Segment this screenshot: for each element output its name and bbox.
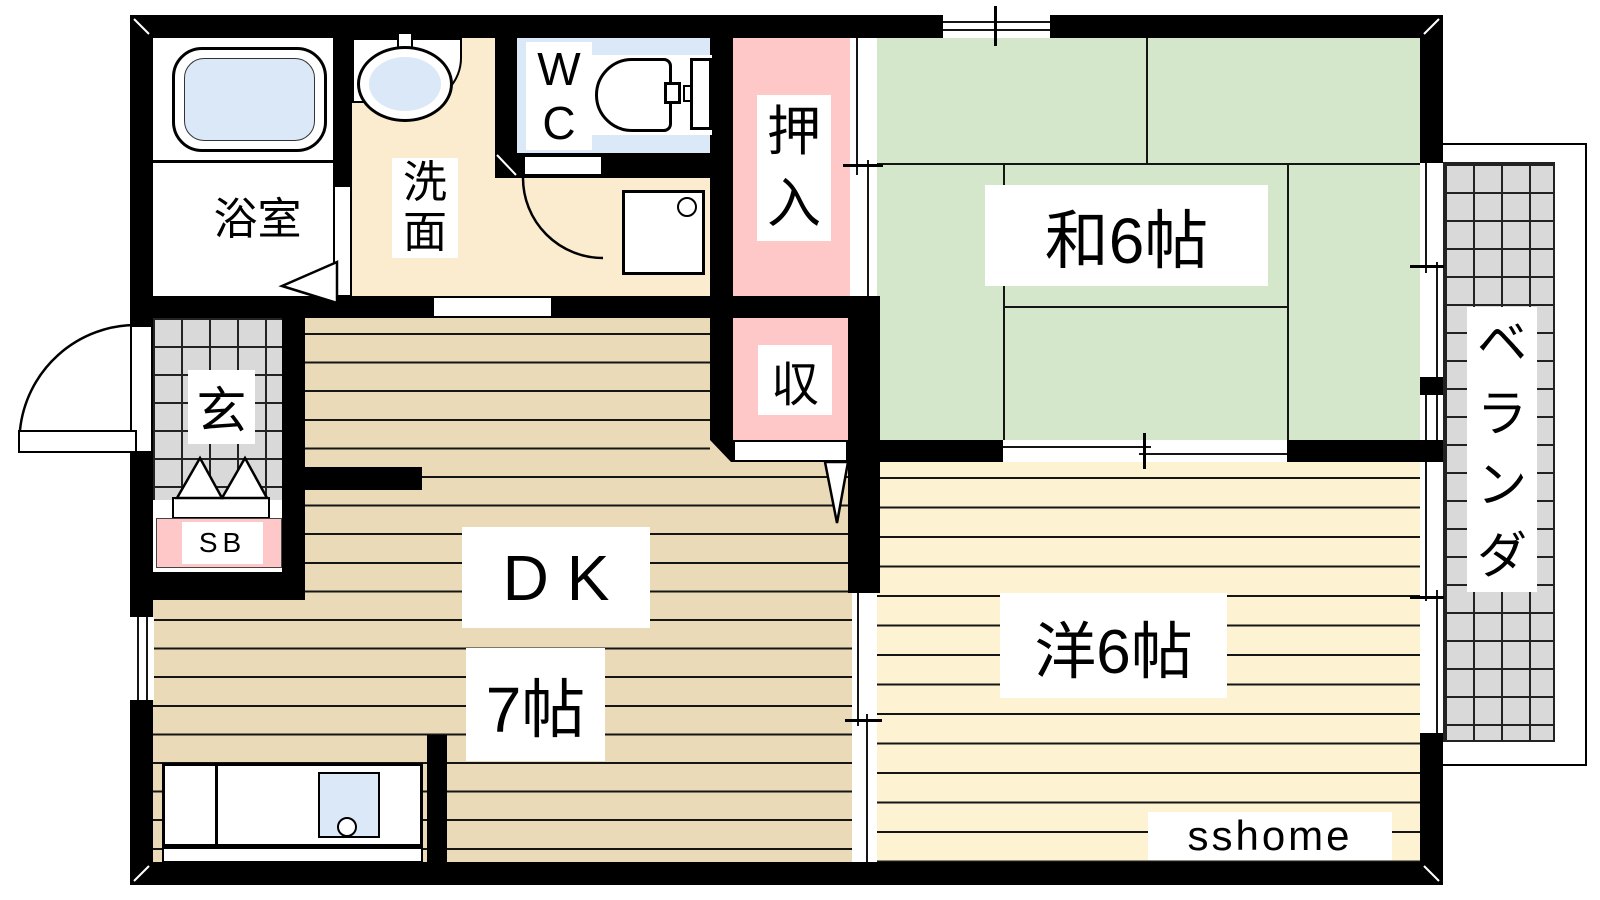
toilet-tank — [690, 58, 712, 130]
bathtub-inner — [184, 58, 315, 141]
window-pane-line — [1436, 590, 1438, 733]
sliding-door-line — [867, 160, 869, 296]
sliding-door-line — [1139, 453, 1287, 455]
sliding-door-tick — [845, 719, 882, 722]
washer-pan-drain — [677, 197, 697, 217]
label-closet-char: 押 — [767, 96, 821, 168]
label-dk: DK — [462, 527, 650, 628]
storage-door-band — [733, 440, 848, 462]
wall-wc-left — [495, 38, 517, 178]
wall-bath-right — [333, 15, 352, 185]
window-left-line — [146, 617, 148, 700]
label-bathroom: 浴室 — [193, 186, 322, 244]
toilet-bowl — [595, 58, 672, 132]
tatami-line — [1003, 306, 1287, 308]
label-veranda-char: ダ — [1477, 521, 1527, 592]
sliding-door-tick — [843, 164, 883, 167]
label-wc: W C — [526, 42, 592, 150]
window-top-tick — [994, 6, 997, 46]
sliding-door-line — [856, 38, 858, 175]
toilet-bowl-notch — [664, 82, 681, 104]
label-entrance: 玄 — [188, 370, 255, 444]
wall-dk-stub — [282, 467, 422, 490]
sliding-door-line — [1003, 446, 1151, 448]
wall-top — [130, 15, 1443, 38]
watermark: sshome — [1148, 812, 1392, 860]
kitchen-counter-divider — [215, 766, 218, 844]
label-dk-size: 7帖 — [466, 648, 605, 761]
label-wc-char: C — [542, 96, 575, 150]
kitchen-counter — [162, 763, 423, 847]
wall-tatami-western-1 — [880, 440, 1003, 462]
wash-basin-inner — [369, 57, 441, 111]
label-veranda-char: ラ — [1477, 379, 1527, 450]
window-pane-line — [1425, 395, 1427, 440]
label-closet: 押 入 — [757, 95, 831, 241]
label-japanese-room: 和6帖 — [985, 185, 1268, 286]
window-tatami-veranda — [1420, 163, 1443, 377]
wall-closet-left — [710, 38, 733, 462]
label-veranda-char: ン — [1477, 450, 1527, 521]
wc-door-leaf — [523, 155, 603, 176]
bathroom-door-opening — [333, 185, 352, 297]
floor-plan: 浴室 洗 面 W C 押 入 収 玄 SB 和6帖 DK 7帖 洋6帖 ベ ラ … — [0, 0, 1600, 900]
sliding-door-line — [866, 714, 868, 862]
label-closet-char: 入 — [767, 168, 821, 240]
tatami-line — [1146, 38, 1148, 165]
toilet-tank-tab — [683, 85, 692, 102]
entrance-step-band — [172, 497, 270, 519]
window-left-line — [137, 617, 139, 700]
tatami-line — [1287, 163, 1289, 440]
window-tick — [1410, 596, 1444, 599]
label-wc-char: W — [537, 42, 580, 96]
wall-entrance-right — [282, 296, 305, 600]
sliding-door-closet — [850, 38, 877, 296]
window-pane-line — [1425, 462, 1427, 601]
wall-tatami-western-2 — [1287, 440, 1443, 462]
window-pane-line — [1425, 163, 1427, 273]
label-shoe-box: SB — [182, 522, 263, 564]
window-pane-line — [1436, 262, 1438, 377]
washroom-opening — [432, 296, 553, 318]
label-storage: 収 — [758, 345, 832, 415]
window-left — [130, 617, 154, 700]
label-washroom-char: 面 — [403, 208, 447, 258]
entry-door-leaf — [18, 430, 137, 453]
window-tick — [1410, 265, 1444, 268]
entry-door-arc — [20, 325, 137, 430]
sliding-door-line — [857, 593, 859, 726]
sliding-door-dk-western — [852, 593, 875, 862]
wall-center-column — [848, 296, 880, 593]
window-tatami-veranda-2 — [1420, 395, 1443, 440]
sliding-door-tick — [1143, 433, 1146, 469]
label-veranda-char: ベ — [1477, 308, 1527, 379]
tatami-line — [877, 163, 1420, 165]
kitchen-sink-drain — [337, 817, 357, 837]
kitchen-counter-strip — [162, 847, 423, 863]
bath-step-line — [153, 160, 333, 163]
wall-kitchen-stub — [427, 735, 447, 862]
label-washroom: 洗 面 — [392, 158, 458, 258]
window-pane-line — [1436, 395, 1438, 440]
label-washroom-char: 洗 — [403, 158, 447, 208]
label-western-room: 洋6帖 — [1000, 593, 1227, 698]
label-veranda: ベ ラ ン ダ — [1467, 307, 1537, 592]
wall-bottom — [130, 862, 1443, 885]
wall-entrance-bottom — [130, 572, 305, 600]
